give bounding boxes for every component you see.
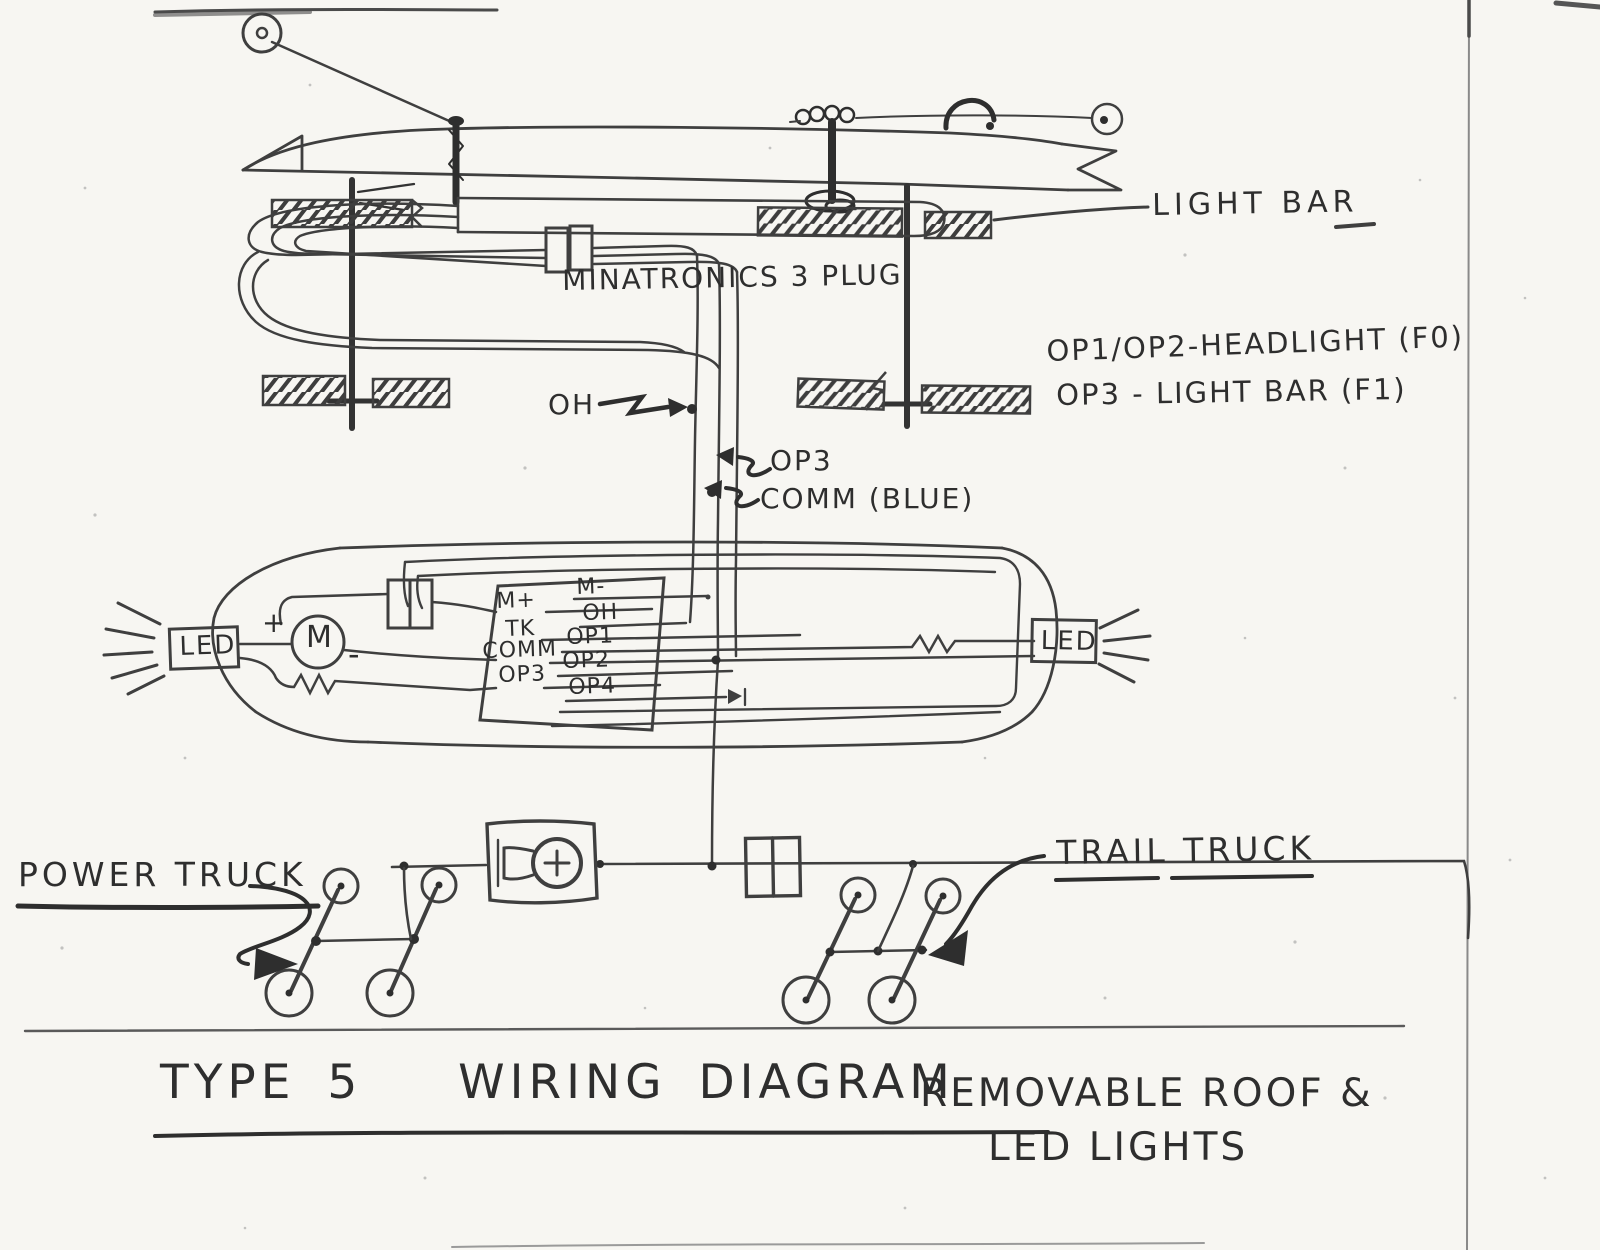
comm-wire-tag: COMM (BLUE)	[760, 484, 974, 513]
coil-spring-post	[796, 106, 854, 212]
roof-shell	[243, 127, 1121, 190]
title-underline	[155, 1132, 1048, 1136]
decoder-pin-oh: OH	[582, 601, 619, 625]
comm-arrow	[704, 480, 758, 506]
trail-truck-label: TRAIL TRUCK	[1056, 831, 1315, 870]
decoder-pin-op4: OP4	[568, 674, 616, 699]
trail-truck-arrow	[928, 856, 1044, 966]
motor-label: M	[306, 622, 334, 654]
motor-minus-label: -	[348, 638, 362, 672]
decoder-pin-op3: OP3	[498, 662, 546, 687]
diagram-subtitle-line2: LED LIGHTS	[988, 1128, 1248, 1169]
function-map-line2: OP3 - LIGHT BAR (F1)	[1056, 374, 1407, 411]
light-bar-label: LIGHT BAR	[1152, 186, 1359, 221]
decoder-pin-comm: COMM	[482, 637, 557, 663]
oh-wire-tag: OH	[548, 390, 595, 419]
decoder-pin-mplus: M+	[496, 589, 536, 613]
power-truck-arrow	[238, 886, 309, 980]
bus-connector-block	[745, 838, 800, 897]
power-truck-underline	[18, 906, 318, 908]
keystone-box	[487, 821, 597, 903]
decoder-pin-op2: OP2	[562, 648, 610, 673]
pulley-and-string	[243, 14, 456, 124]
op3-wire-tag: OP3	[770, 446, 833, 475]
trail-truck-underline	[1056, 876, 1312, 880]
diagram-subtitle-line1: REMOVABLE ROOF &	[920, 1074, 1374, 1115]
minatronics-plug-label: MINATRONICS 3 PLUG	[562, 260, 903, 295]
op3-arrow	[716, 447, 770, 475]
wire-bundle	[239, 204, 738, 864]
scanned-wiring-diagram-page: LIGHT BAR MINATRONICS 3 PLUG OP1/OP2-HEA…	[0, 0, 1600, 1250]
decoder-pin-mminus: M-	[576, 575, 606, 599]
led-right-label: LED	[1041, 628, 1098, 656]
light-bar-hatching	[263, 200, 1030, 413]
oh-arrow	[600, 397, 697, 417]
decoder-pin-op1: OP1	[566, 624, 614, 649]
led-left-label: LED	[179, 632, 237, 661]
trail-truck-wheels	[783, 866, 960, 1023]
annotation-arrows	[18, 397, 1312, 1136]
body-shell	[104, 542, 1150, 747]
power-truck-label: POWER TRUCK	[18, 858, 307, 893]
motor-plus-label: +	[262, 608, 287, 637]
diagram-title: TYPE 5 WIRING DIAGRAM	[160, 1058, 955, 1107]
